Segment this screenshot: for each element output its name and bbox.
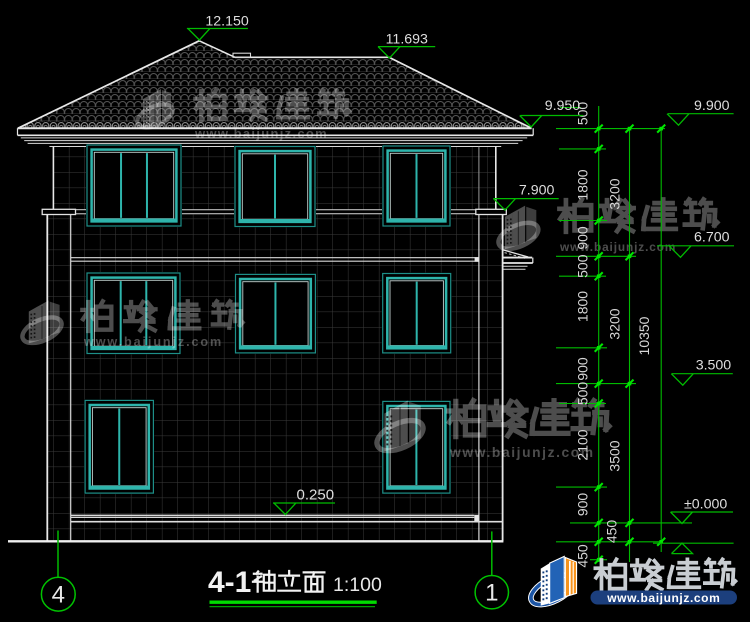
svg-text:www.baijunjz.com: www.baijunjz.com [194,126,328,141]
svg-text:4: 4 [52,582,65,609]
svg-text:10350: 10350 [636,316,652,355]
svg-text:4-1: 4-1 [208,566,251,599]
svg-text:6.700: 6.700 [694,230,730,246]
svg-text:3200: 3200 [607,308,623,339]
svg-text:12.150: 12.150 [205,13,249,29]
svg-text:9.950: 9.950 [545,98,581,114]
svg-text:±0.000: ±0.000 [684,497,727,513]
svg-text:0.250: 0.250 [297,487,335,504]
svg-text:3500: 3500 [607,440,623,471]
svg-text:www.baijunjz.com: www.baijunjz.com [449,445,595,460]
svg-text:3.500: 3.500 [696,358,732,374]
svg-text:1800: 1800 [575,291,591,322]
svg-text:www.baijunjz.com: www.baijunjz.com [606,591,720,605]
svg-text:450: 450 [604,520,620,544]
svg-text:3200: 3200 [607,178,623,209]
svg-text:900: 900 [575,226,591,250]
svg-text:7.900: 7.900 [519,183,555,199]
svg-text:11.693: 11.693 [386,32,428,48]
svg-text:www.baijunjz.com: www.baijunjz.com [83,335,223,349]
svg-text:900: 900 [575,493,591,517]
svg-text:1:100: 1:100 [333,574,382,596]
svg-text:1: 1 [485,580,498,607]
svg-text:2100: 2100 [575,429,591,460]
svg-text:1800: 1800 [575,169,591,200]
svg-text:9.900: 9.900 [694,98,730,114]
svg-text:500: 500 [575,382,591,406]
svg-text:900: 900 [575,357,591,381]
svg-text:500: 500 [575,254,591,278]
